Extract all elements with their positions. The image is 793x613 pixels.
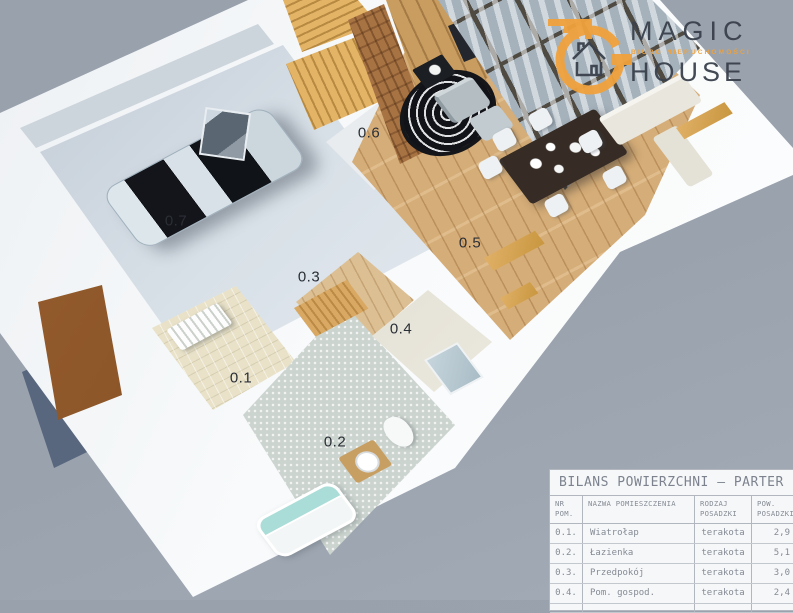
room-label-0-6: 0.6	[358, 125, 380, 142]
table-row: 0.3. Przedpokój terakota 3,0	[550, 564, 793, 584]
table-row: 0.4. Pom. gospod. terakota 2,4	[550, 584, 793, 604]
garage-window	[199, 107, 251, 161]
col-header-name: NAZWA POMIESZCZENIA	[583, 496, 695, 523]
col-header-nr: NR POM.	[550, 496, 583, 523]
room-label-0-5: 0.5	[459, 235, 481, 252]
logo-tagline: BIURO NIERUCHOMOŚCI	[631, 49, 751, 56]
key-icon	[548, 16, 600, 44]
room-label-0-3: 0.3	[298, 269, 320, 286]
table-row: 0.1. Wiatrołap terakota 2,9	[550, 524, 793, 544]
room-label-0-2: 0.2	[324, 434, 346, 451]
magic-house-logo: MAGIC BIURO NIERUCHOMOŚCI HOUSE	[548, 16, 793, 96]
logo-text-house: HOUSE	[630, 57, 746, 88]
area-balance-table: BILANS POWIERZCHNI – PARTER NR POM. NAZW…	[549, 469, 793, 611]
room-label-0-1: 0.1	[230, 370, 252, 387]
g-bar-icon	[611, 54, 632, 65]
floorplan-page: { "logo": { "brand_line1": "MAGIC", "bra…	[0, 0, 793, 600]
table-title: BILANS POWIERZCHNI – PARTER	[550, 470, 793, 496]
logo-text-magic: MAGIC	[630, 16, 749, 47]
table-row: 0.2. Łazienka terakota 5,1	[550, 544, 793, 564]
col-header-floor-type: RODZAJ POSADZKI	[695, 496, 752, 523]
table-header-row: NR POM. NAZWA POMIESZCZENIA RODZAJ POSAD…	[550, 496, 793, 524]
table-row-partial	[550, 604, 793, 613]
col-header-area: POW. POSADZKI	[752, 496, 793, 523]
room-label-0-7: 0.7	[165, 213, 187, 230]
room-label-0-4: 0.4	[390, 321, 412, 338]
house-icon	[573, 43, 605, 75]
